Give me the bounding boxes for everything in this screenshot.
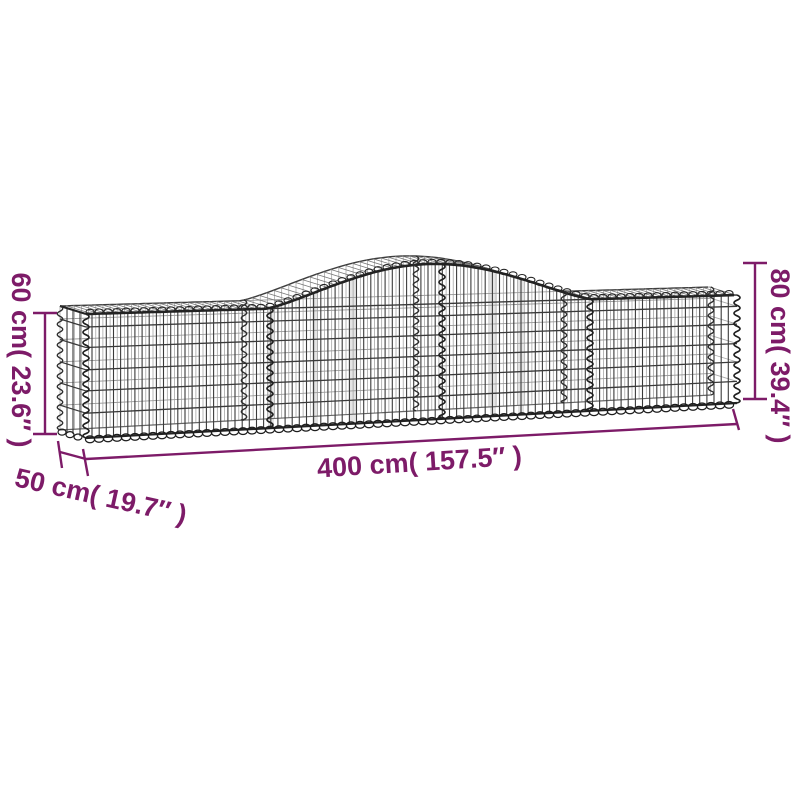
depth-dimension: [58, 441, 88, 476]
mesh-wire-horizontal: [711, 354, 737, 362]
lid-wire: [302, 280, 328, 288]
mesh-wire-horizontal: [711, 298, 737, 306]
mesh-wire-horizontal: [711, 316, 737, 324]
right-end-face: [711, 298, 737, 381]
left-end-face: [60, 306, 86, 436]
end-height-dimension-label: 60 cm( 23.6″ ): [6, 272, 36, 447]
gabion-basket-illustration: [57, 256, 740, 443]
mesh-wire-horizontal: [711, 336, 737, 344]
bottom-coil-loop: [66, 432, 74, 438]
peak-height-dimension: [743, 263, 767, 399]
spiral-edge-front: [734, 295, 740, 403]
dimension-cap: [733, 409, 739, 430]
lid-wire: [331, 269, 357, 277]
lid-wire: [295, 282, 321, 290]
dimension-cap: [58, 441, 62, 468]
shading-stripe: [490, 270, 496, 416]
product-dimension-diagram: 400 cm( 157.5″ ) 50 cm( 19.7″ ) 60 cm( 2…: [0, 0, 800, 800]
length-dimension-label: 400 cm( 157.5″ ): [316, 441, 523, 484]
spiral-edge-front: [83, 314, 89, 438]
dimension-cap: [83, 449, 88, 476]
peak-height-dimension-label: 80 cm( 39.4″ ): [765, 268, 795, 443]
diagram-svg: 400 cm( 157.5″ ) 50 cm( 19.7″ ) 60 cm( 2…: [0, 0, 800, 800]
mesh-wire-horizontal: [711, 373, 737, 381]
depth-dimension-label: 50 cm( 19.7″ ): [12, 463, 189, 530]
spiral-edge-back: [708, 287, 713, 395]
dimension-line: [60, 452, 86, 459]
lid-wire: [359, 262, 385, 270]
bottom-coil-loop: [74, 434, 82, 440]
lid-wire: [338, 267, 364, 275]
